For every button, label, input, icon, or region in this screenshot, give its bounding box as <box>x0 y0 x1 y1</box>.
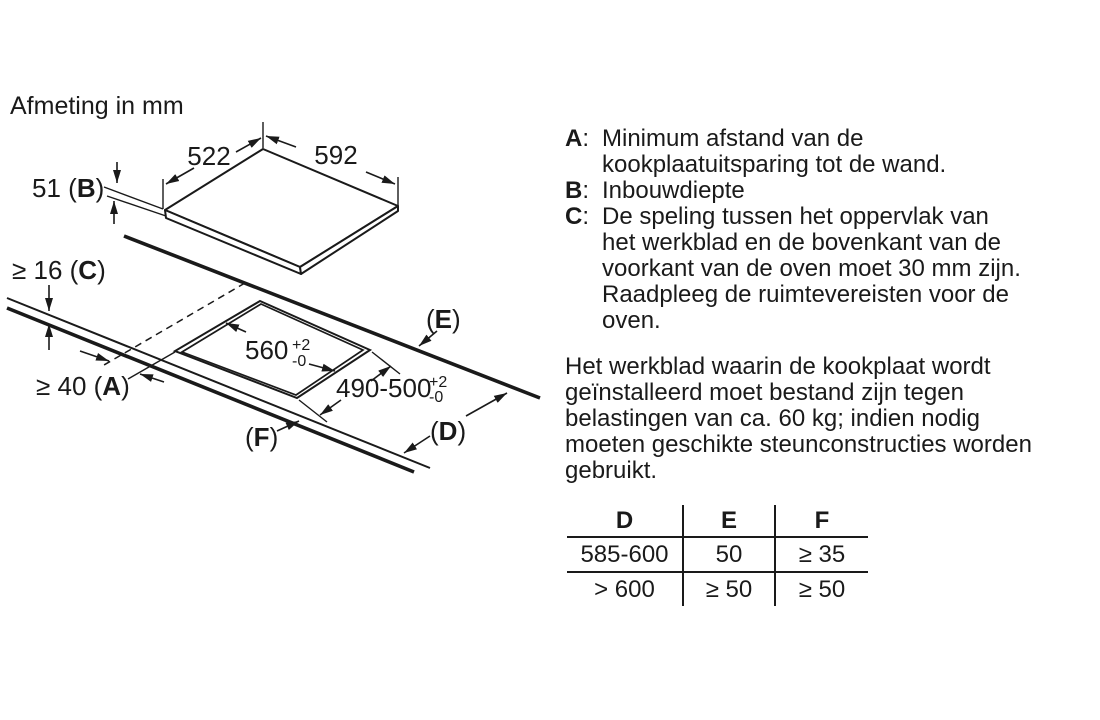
definition-c: C: De speling tussen het oppervlak van <box>565 204 1060 230</box>
definition-b: B: Inbouwdiepte <box>565 178 1060 204</box>
table-row: > 600 ≥ 50 ≥ 50 <box>567 572 868 606</box>
table-cell: 585-600 <box>567 537 683 572</box>
dim-522-label: 522 <box>187 141 230 171</box>
arrow-dim-a-left <box>140 374 164 382</box>
arrow-dim-522-right <box>236 138 261 152</box>
definition-a: A: Minimum afstand van de <box>565 126 1060 152</box>
arrow-label-d-upper <box>466 393 507 416</box>
dim-b-label: 51 (B) <box>32 173 104 203</box>
label-e: (E) <box>426 304 461 334</box>
dim-cutout-width-label: 560+2-0 <box>245 335 310 370</box>
paragraph-line: belastingen van ca. 60 kg; indien nodig <box>565 406 1060 432</box>
table-header-d: D <box>567 505 683 537</box>
table-cell: ≥ 35 <box>775 537 868 572</box>
table-header-e: E <box>683 505 775 537</box>
definition-b-text-line: Inbouwdiepte <box>602 178 745 204</box>
paragraph-line: moeten geschikte steunconstructies worde… <box>565 432 1060 458</box>
arrow-label-d-lower <box>404 436 430 453</box>
arrow-dim-592-left <box>266 136 296 147</box>
definition-c-text-line: Raadpleeg de ruimtevereisten voor de <box>602 282 1060 308</box>
paragraph-line: geïnstalleerd moet bestand zijn tegen <box>565 380 1060 406</box>
page: Afmeting in mm <box>0 0 1100 720</box>
def-dimension-table: D E F 585-600 50 ≥ 35 > 600 ≥ 50 ≥ 50 <box>567 505 868 606</box>
arrow-dim-592-right <box>366 172 395 184</box>
dim-a-label: ≥ 40 (A) <box>36 371 130 401</box>
paragraph-line: Het werkblad waarin de kookplaat wordt <box>565 354 1060 380</box>
table-cell: > 600 <box>567 572 683 606</box>
dim-cutout-depth-label: 490-500+2-0 <box>336 373 447 406</box>
dim-592-label: 592 <box>314 140 357 170</box>
definition-c-key: C <box>565 203 582 230</box>
definition-a-text-line: Minimum afstand van de <box>602 126 863 152</box>
definition-c-text-line: het werkblad en de bovenkant van de <box>602 230 1060 256</box>
paragraph-line: gebruikt. <box>565 458 1060 484</box>
worktop-back-edge-line <box>124 236 540 398</box>
label-d: (D) <box>430 416 466 446</box>
definition-c-text-line: voorkant van de oven moet 30 mm zijn. <box>602 256 1060 282</box>
description-column: A: Minimum afstand van de kookplaatuitsp… <box>565 126 1060 606</box>
table-header-row: D E F <box>567 505 868 537</box>
table-cell: 50 <box>683 537 775 572</box>
label-f: (F) <box>245 422 278 452</box>
table-cell: ≥ 50 <box>683 572 775 606</box>
arrow-dim-560-downright <box>309 364 335 371</box>
table-row: 585-600 50 ≥ 35 <box>567 537 868 572</box>
definition-a-text-line: kookplaatuitsparing tot de wand. <box>602 152 1060 178</box>
table-cell: ≥ 50 <box>775 572 868 606</box>
ext-line-depth-bottom <box>299 400 327 422</box>
definition-list: A: Minimum afstand van de kookplaatuitsp… <box>565 126 1060 334</box>
dim-c-label: ≥ 16 (C) <box>12 255 106 285</box>
definition-c-text-line: De speling tussen het oppervlak van <box>602 204 989 230</box>
arrow-dim-a-right <box>80 351 109 361</box>
definition-a-key: A <box>565 125 582 152</box>
definition-c-text-line: oven. <box>602 308 1060 334</box>
arrow-dim-560-upleft <box>226 323 246 332</box>
table-header-f: F <box>775 505 868 537</box>
installation-diagram: 522 592 51 (B) ≥ 16 (C) ≥ 40 (A) (E) (D)… <box>0 0 560 500</box>
worktop-note-paragraph: Het werkblad waarin de kookplaat wordt g… <box>565 354 1060 484</box>
definition-b-key: B <box>565 177 582 204</box>
